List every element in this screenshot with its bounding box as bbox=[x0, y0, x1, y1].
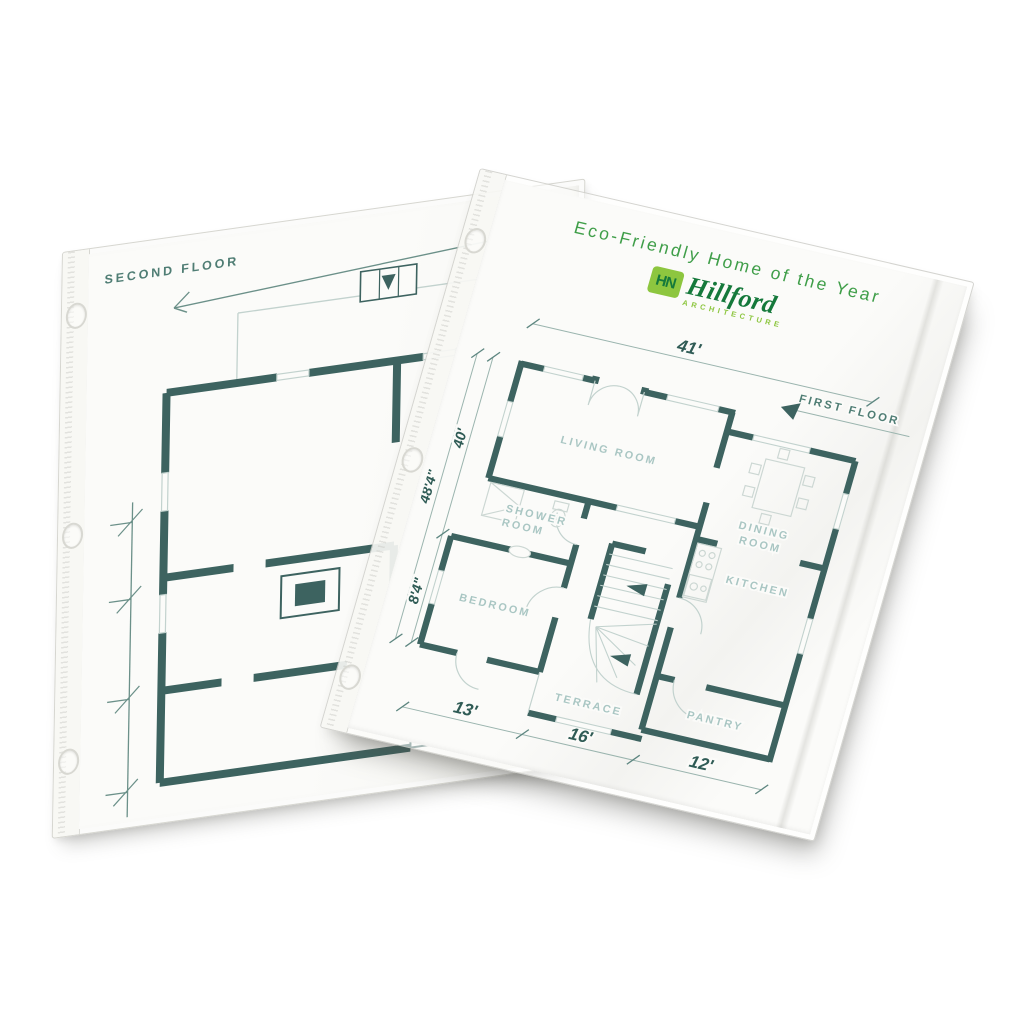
punch-hole bbox=[58, 747, 80, 776]
second-floor-label: SECOND FLOOR bbox=[104, 254, 239, 287]
room-label-terrace: TERRACE bbox=[553, 692, 623, 719]
dimension-left-lower: 8'4" bbox=[406, 576, 429, 605]
dimension-bottom-left: 13' bbox=[451, 697, 480, 722]
punch-hole bbox=[62, 521, 84, 550]
entrance-jambs bbox=[591, 376, 649, 396]
room-label-bedroom: BEDROOM bbox=[458, 592, 532, 620]
product-photo: SECOND FLOOR bbox=[0, 0, 1024, 1024]
dimension-top: 41' bbox=[674, 335, 704, 360]
chimney-detail bbox=[360, 264, 417, 302]
room-label-pantry: PANTRY bbox=[685, 709, 744, 733]
dimension-left-outer: 48'4" bbox=[416, 468, 441, 506]
room-label-living: LIVING ROOM bbox=[559, 434, 658, 468]
dimension-bottom-right: 12' bbox=[687, 751, 716, 776]
dimension-left-mid: 40' bbox=[450, 427, 471, 451]
dimension-line bbox=[105, 501, 143, 820]
room-label-kitchen: KITCHEN bbox=[724, 574, 790, 600]
punch-hole bbox=[66, 301, 88, 330]
logo-monogram-icon: HN bbox=[646, 265, 685, 298]
